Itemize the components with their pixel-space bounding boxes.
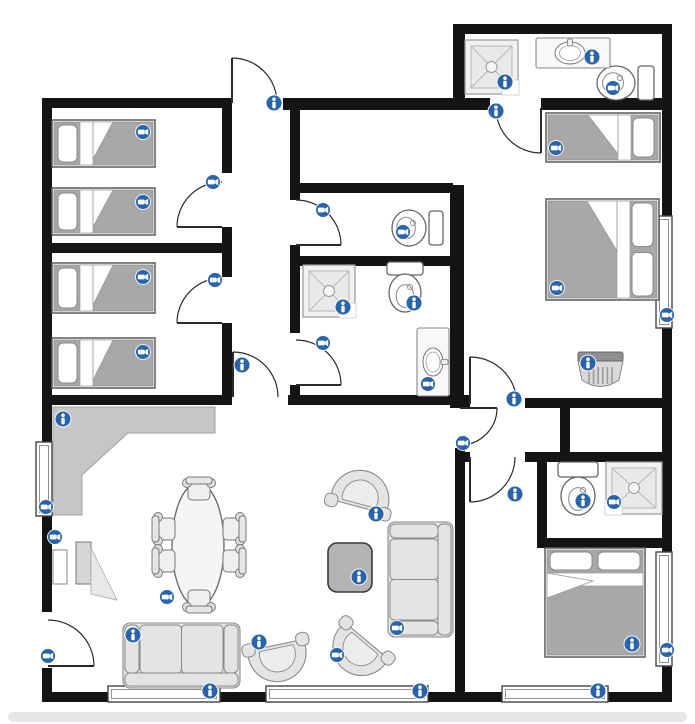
camera-marker[interactable] bbox=[39, 500, 54, 515]
camera-marker[interactable] bbox=[316, 336, 331, 351]
camera-marker[interactable] bbox=[660, 643, 675, 658]
camera-marker[interactable] bbox=[48, 530, 63, 545]
camera-marker[interactable] bbox=[456, 436, 471, 451]
camera-marker[interactable] bbox=[396, 225, 411, 240]
info-marker[interactable] bbox=[412, 683, 428, 699]
camera-marker[interactable] bbox=[316, 203, 331, 218]
camera-marker[interactable] bbox=[160, 590, 175, 605]
info-marker[interactable] bbox=[266, 95, 282, 111]
camera-marker[interactable] bbox=[550, 281, 565, 296]
camera-marker[interactable] bbox=[607, 495, 622, 510]
toilet[interactable] bbox=[597, 66, 654, 100]
camera-marker[interactable] bbox=[390, 621, 405, 636]
camera-marker[interactable] bbox=[136, 195, 151, 210]
camera-marker[interactable] bbox=[549, 141, 564, 156]
coffee-table[interactable] bbox=[328, 543, 372, 592]
info-marker[interactable] bbox=[624, 636, 640, 652]
floor-plan-canvas bbox=[0, 0, 695, 724]
info-marker[interactable] bbox=[351, 569, 367, 585]
dining-table[interactable] bbox=[172, 483, 224, 607]
camera-marker[interactable] bbox=[136, 125, 151, 140]
camera-marker[interactable] bbox=[330, 648, 345, 663]
camera-marker[interactable] bbox=[208, 273, 223, 288]
camera-marker[interactable] bbox=[660, 308, 675, 323]
camera-marker[interactable] bbox=[136, 270, 151, 285]
sofa[interactable] bbox=[388, 522, 453, 637]
info-marker[interactable] bbox=[251, 634, 267, 650]
info-marker[interactable] bbox=[406, 295, 422, 311]
info-marker[interactable] bbox=[234, 357, 250, 373]
info-marker[interactable] bbox=[507, 486, 523, 502]
camera-marker[interactable] bbox=[41, 649, 56, 664]
camera-marker[interactable] bbox=[421, 377, 436, 392]
camera-marker[interactable] bbox=[136, 345, 151, 360]
chair[interactable] bbox=[223, 545, 246, 578]
camera-marker[interactable] bbox=[606, 81, 621, 96]
camera-marker[interactable] bbox=[206, 175, 221, 190]
info-marker[interactable] bbox=[580, 355, 596, 371]
info-marker[interactable] bbox=[506, 391, 522, 407]
chair[interactable] bbox=[223, 513, 246, 546]
window[interactable] bbox=[266, 686, 428, 702]
floor-plan-page bbox=[0, 0, 695, 724]
barrel-chair[interactable] bbox=[317, 614, 397, 691]
info-marker[interactable] bbox=[590, 683, 606, 699]
info-marker[interactable] bbox=[584, 49, 600, 65]
info-marker[interactable] bbox=[55, 411, 71, 427]
bed[interactable] bbox=[546, 113, 660, 162]
horizontal-scrollbar[interactable] bbox=[8, 712, 687, 722]
info-marker[interactable] bbox=[575, 493, 591, 509]
tv[interactable] bbox=[53, 542, 117, 600]
info-marker[interactable] bbox=[368, 506, 384, 522]
info-marker[interactable] bbox=[202, 683, 218, 699]
info-marker[interactable] bbox=[488, 103, 504, 119]
barrel-chair[interactable] bbox=[323, 462, 400, 522]
info-marker[interactable] bbox=[125, 627, 141, 643]
info-marker[interactable] bbox=[497, 74, 513, 90]
info-marker[interactable] bbox=[335, 299, 351, 315]
